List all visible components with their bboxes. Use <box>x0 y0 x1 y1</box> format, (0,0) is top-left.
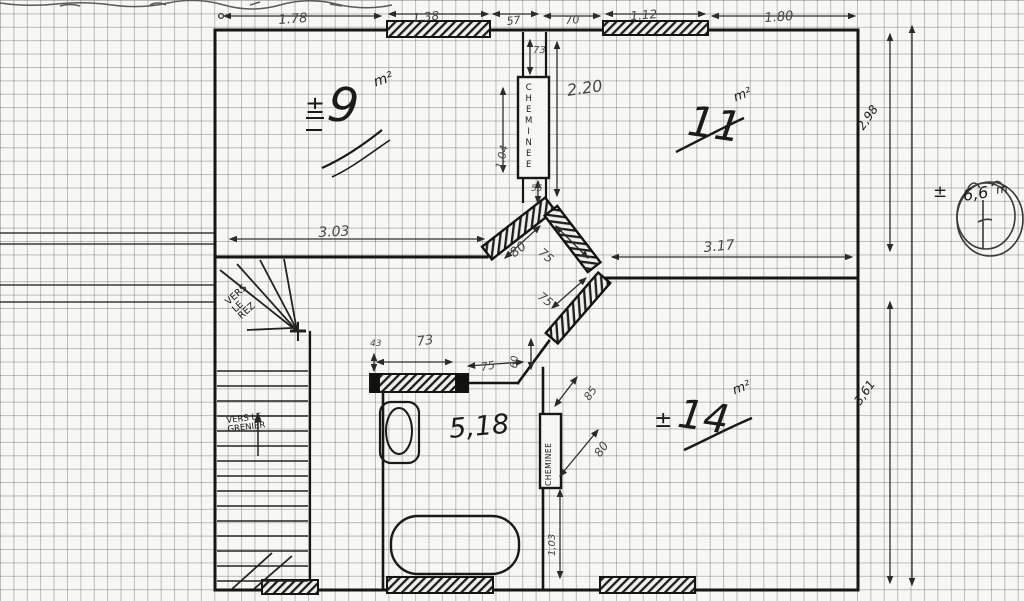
diagonal-walls <box>482 198 610 344</box>
window-bottom-bath <box>387 577 493 593</box>
windows <box>262 21 708 594</box>
stairs-straight <box>217 371 308 589</box>
left-extension-lines <box>0 233 215 302</box>
bathtub <box>391 516 519 574</box>
total-height-circle <box>957 181 1023 256</box>
window-top-left <box>387 21 490 37</box>
window-bath-cap-left <box>370 374 379 392</box>
toilet <box>380 402 419 463</box>
window-bath-top <box>374 374 463 392</box>
chimney-upper <box>518 32 549 203</box>
stairs-winder <box>220 259 306 341</box>
chimney-lower <box>540 414 561 488</box>
window-bath-cap-right <box>456 374 468 392</box>
top-edge-scribble <box>0 0 392 9</box>
window-top-right <box>603 21 708 35</box>
graph-paper-sheet: 1.78 1.38 57 70 1.12 1.80 ± 9 m² 11 m² ±… <box>0 0 1024 601</box>
floor-plan-drawing <box>0 0 1024 601</box>
dimension-lines <box>219 14 912 585</box>
window-bottom-room14 <box>600 577 695 593</box>
window-bottom-stairs <box>262 580 318 594</box>
